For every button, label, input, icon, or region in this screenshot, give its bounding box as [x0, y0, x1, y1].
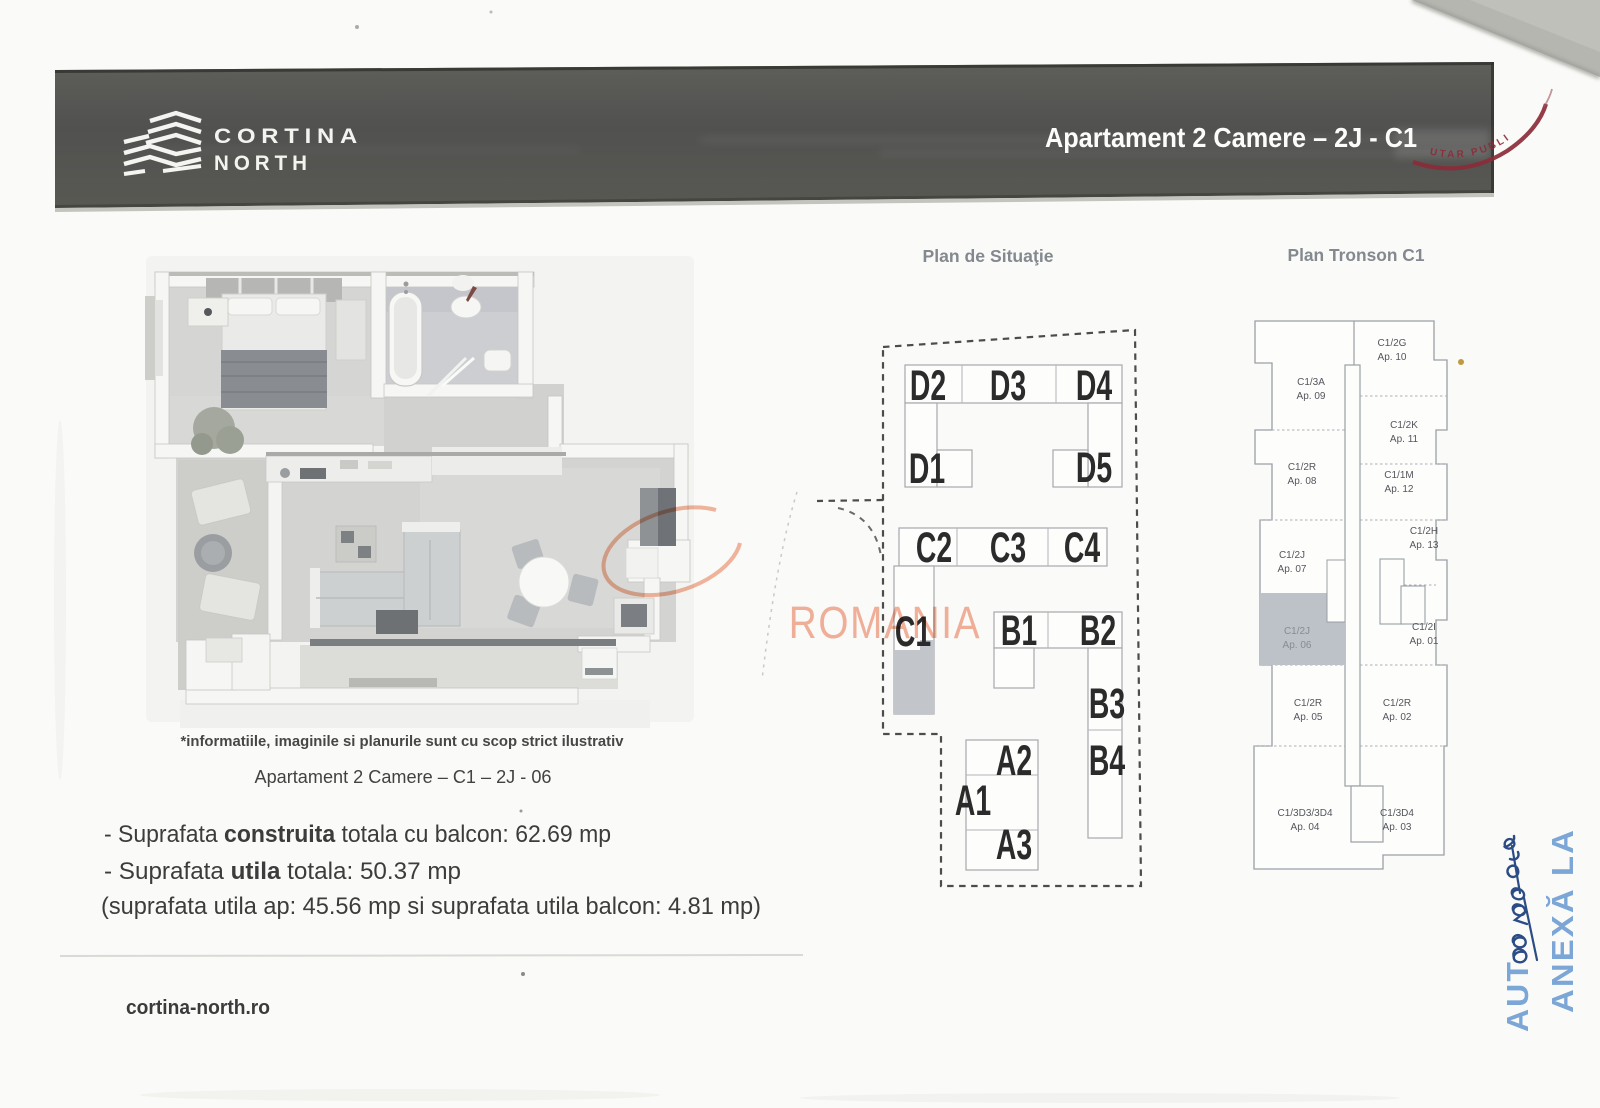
svg-text:Ap. 10: Ap. 10 [1378, 352, 1407, 363]
svg-text:Apartament 2 Camere – C1 – 2J: Apartament 2 Camere – C1 – 2J - 06 [255, 766, 552, 787]
svg-text:C1/2G: C1/2G [1378, 338, 1407, 349]
svg-text:ANEXĂ LA: ANEXĂ LA [1545, 828, 1580, 1013]
svg-text:Ap. 12: Ap. 12 [1385, 484, 1414, 495]
svg-text:C1/3D3/3D4: C1/3D3/3D4 [1277, 808, 1332, 819]
svg-text:C4: C4 [1064, 523, 1101, 571]
svg-text:A1: A1 [955, 776, 991, 824]
svg-text:Plan de Situaţie: Plan de Situaţie [923, 246, 1054, 266]
svg-text:D2: D2 [910, 361, 946, 409]
svg-text:Ap. 05: Ap. 05 [1294, 712, 1323, 723]
svg-text:C1/3A: C1/3A [1297, 377, 1325, 388]
svg-text:B2: B2 [1080, 606, 1116, 654]
svg-text:D4: D4 [1076, 361, 1113, 409]
svg-text:C2: C2 [916, 523, 952, 571]
svg-text:C1/2J: C1/2J [1284, 626, 1310, 637]
svg-text:C3: C3 [990, 523, 1026, 571]
svg-text:- Suprafata utila totala: 50.3: - Suprafata utila totala: 50.37 mp [104, 858, 461, 885]
svg-text:B1: B1 [1001, 606, 1037, 654]
svg-text:- Suprafata construita totala: - Suprafata construita totala cu balcon:… [104, 821, 611, 848]
svg-text:Ap. 07: Ap. 07 [1278, 564, 1307, 575]
svg-text:Ap. 08: Ap. 08 [1288, 476, 1317, 487]
svg-text:NORTH: NORTH [214, 151, 312, 175]
svg-text:B3: B3 [1089, 679, 1125, 727]
svg-text:CORTINA: CORTINA [214, 124, 363, 148]
svg-text:Ap. 02: Ap. 02 [1383, 712, 1412, 723]
svg-text:D1: D1 [909, 444, 945, 492]
svg-text:Ap. 09: Ap. 09 [1297, 391, 1326, 402]
svg-text:Ap. 06: Ap. 06 [1283, 640, 1312, 651]
svg-text:Ap. 03: Ap. 03 [1383, 822, 1412, 833]
svg-text:Ap. 13: Ap. 13 [1410, 540, 1439, 551]
svg-text:cortina-north.ro: cortina-north.ro [126, 997, 270, 1019]
svg-text:A3: A3 [996, 820, 1032, 868]
svg-text:Apartament 2 Camere – 2J - C1: Apartament 2 Camere – 2J - C1 [1045, 122, 1417, 153]
svg-text:D5: D5 [1076, 443, 1112, 491]
svg-text:*informatiile, imaginile si pl: *informatiile, imaginile si planurile su… [181, 733, 625, 750]
svg-text:Ap. 04: Ap. 04 [1291, 822, 1320, 833]
svg-text:C1/2H: C1/2H [1410, 526, 1438, 537]
svg-text:(suprafata utila ap: 45.56 mp: (suprafata utila ap: 45.56 mp si suprafa… [101, 893, 761, 920]
svg-text:C1/2R: C1/2R [1294, 698, 1322, 709]
svg-text:Plan Tronson C1: Plan Tronson C1 [1288, 245, 1425, 265]
svg-text:C1/2R: C1/2R [1383, 698, 1411, 709]
svg-text:C1/2R: C1/2R [1288, 462, 1316, 473]
svg-text:ROMANIA: ROMANIA [789, 597, 982, 647]
svg-text:C1/1M: C1/1M [1384, 470, 1413, 481]
svg-text:Ap. 01: Ap. 01 [1410, 636, 1439, 647]
svg-text:AUT: AUT [1500, 960, 1535, 1032]
svg-text:C1/3D4: C1/3D4 [1380, 808, 1414, 819]
svg-text:C1/2K: C1/2K [1390, 420, 1418, 431]
svg-text:Ap. 11: Ap. 11 [1390, 434, 1419, 445]
svg-text:D3: D3 [990, 361, 1026, 409]
svg-text:C1/2I: C1/2I [1412, 622, 1436, 633]
svg-text:C1/2J: C1/2J [1279, 550, 1305, 561]
svg-text:B4: B4 [1089, 736, 1126, 784]
svg-text:A2: A2 [996, 736, 1032, 784]
